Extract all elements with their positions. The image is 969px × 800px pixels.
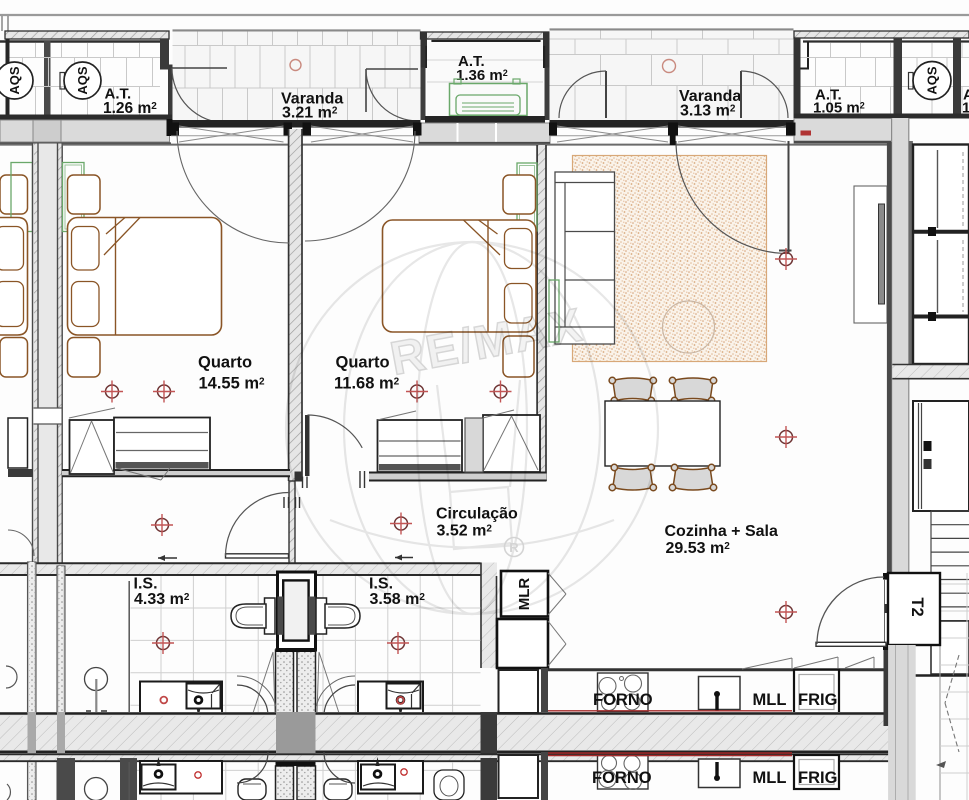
svg-text:3.21 m2: 3.21 m2 xyxy=(282,105,338,122)
svg-text:AQS: AQS xyxy=(75,66,90,95)
svg-text:4.33 m2: 4.33 m2 xyxy=(134,591,190,608)
svg-text:FRIG: FRIG xyxy=(798,769,837,787)
svg-text:3.13 m2: 3.13 m2 xyxy=(680,103,736,120)
svg-text:AQS: AQS xyxy=(7,66,22,95)
svg-text:T2: T2 xyxy=(908,597,926,616)
svg-text:Quarto: Quarto xyxy=(336,354,390,372)
svg-text:1.36 m2: 1.36 m2 xyxy=(456,67,508,84)
svg-text:14.55 m2: 14.55 m2 xyxy=(199,375,266,393)
svg-text:I.S.: I.S. xyxy=(134,576,158,593)
svg-text:3.52 m2: 3.52 m2 xyxy=(437,523,493,540)
svg-text:FORNO: FORNO xyxy=(592,769,652,787)
svg-text:11.68 m2: 11.68 m2 xyxy=(334,375,400,393)
svg-text:R: R xyxy=(509,540,519,555)
svg-text:Quarto: Quarto xyxy=(198,354,252,372)
svg-text:Cozinha + Sala: Cozinha + Sala xyxy=(665,523,778,540)
svg-text:FORNO: FORNO xyxy=(593,691,653,709)
svg-text:Circulação: Circulação xyxy=(436,506,518,523)
svg-text:MLL: MLL xyxy=(753,769,787,787)
svg-text:AQS: AQS xyxy=(925,66,940,95)
svg-text:FRIG: FRIG xyxy=(798,691,837,709)
svg-text:1.26 m2: 1.26 m2 xyxy=(103,100,157,117)
svg-text:29.53 m2: 29.53 m2 xyxy=(666,540,731,557)
svg-text:MLL: MLL xyxy=(753,691,787,709)
